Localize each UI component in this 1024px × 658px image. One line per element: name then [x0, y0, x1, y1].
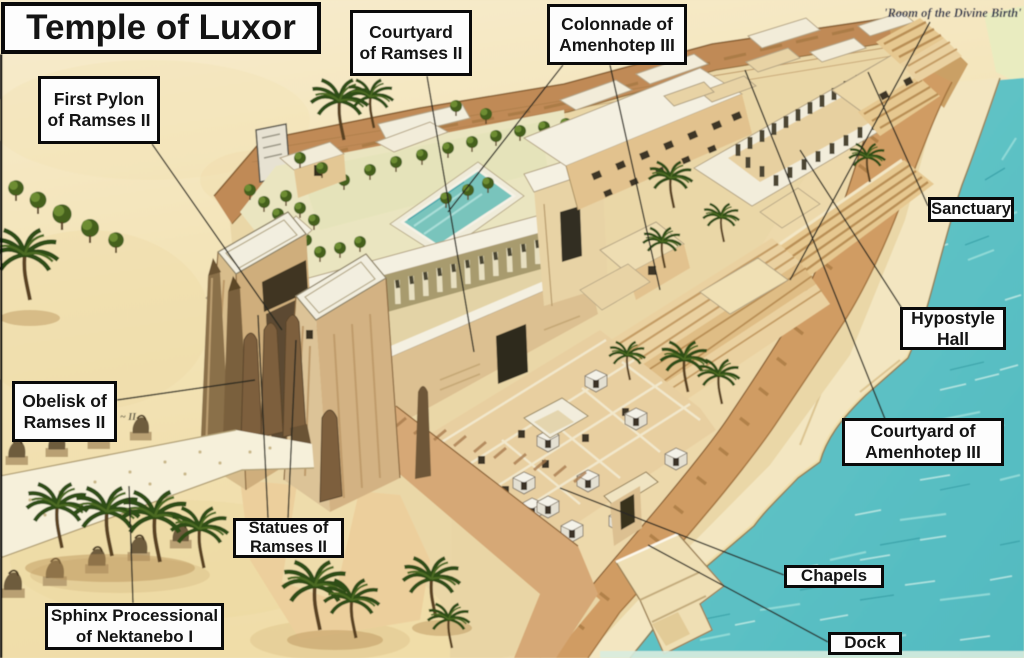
svg-text:'Room of the Divine Birth': 'Room of the Divine Birth'	[884, 6, 1022, 20]
svg-text:~ II: ~ II	[120, 412, 137, 423]
